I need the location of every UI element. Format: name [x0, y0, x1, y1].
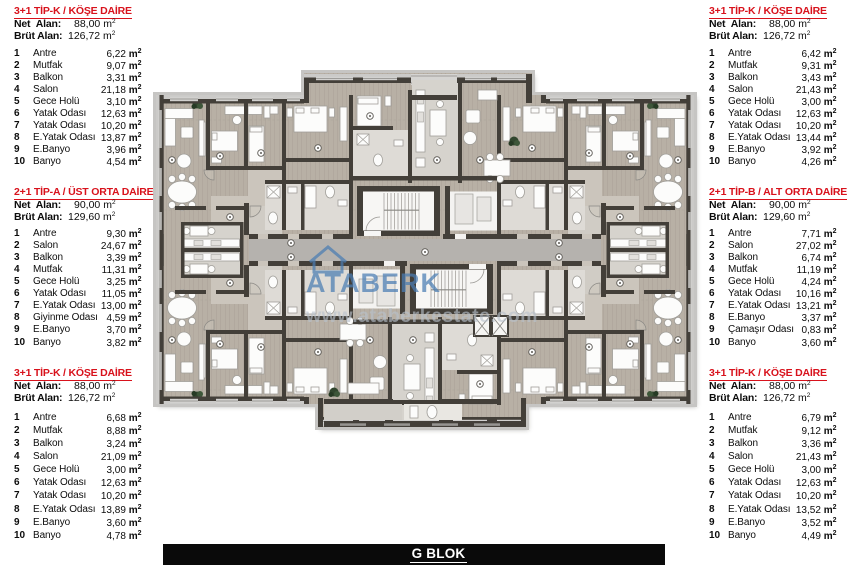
svg-text:ATABERK: ATABERK — [306, 268, 441, 298]
svg-text:www.ataberkestate.com: www.ataberkestate.com — [305, 305, 538, 327]
